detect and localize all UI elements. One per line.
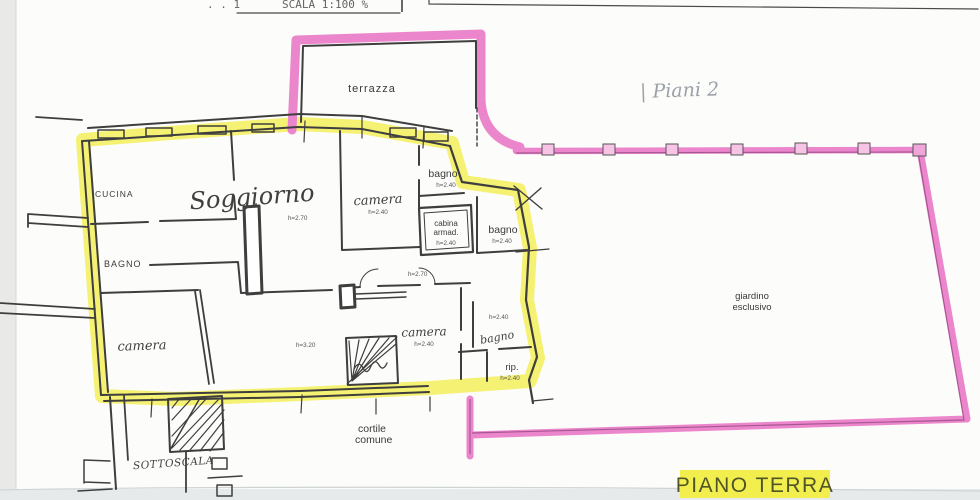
height-bagno-top: h=2.40 xyxy=(436,182,456,189)
height-corridoio: h=2.70 xyxy=(408,271,428,278)
label-camera-sw: camera xyxy=(117,338,167,355)
label-terrazza: terrazza xyxy=(348,83,396,95)
label-giardino-line2: esclusivo xyxy=(732,302,771,313)
label-sottoscala: SOTTOSCALA xyxy=(133,455,215,473)
height-rip: h=2.40 xyxy=(500,375,520,382)
label-camera-s: camera xyxy=(401,324,447,340)
floor-plan-page: . . 1 SCALA 1:100 % xyxy=(0,0,980,500)
label-rip: rip. xyxy=(505,362,518,373)
scan-left-edge xyxy=(0,0,16,500)
stairs-main xyxy=(346,336,398,385)
label-bagno-right: bagno xyxy=(488,224,517,236)
height-soggiorno: h=2.70 xyxy=(288,215,308,222)
height-camera-nw: h=2.40 xyxy=(368,209,388,216)
label-piano-terra: PIANO TERRA xyxy=(676,474,834,497)
note-piani-handwritten: | Piani 2 xyxy=(640,78,720,103)
label-cabina-line2: armad. xyxy=(434,228,459,237)
label-cabina-line1: cabina xyxy=(434,219,458,228)
height-cabina: h=2.40 xyxy=(436,240,456,247)
label-cortile-line2: comune xyxy=(355,434,393,446)
labels: terrazza CUCINA Soggiorno h=2.70 BAGNO c… xyxy=(95,78,834,497)
header-scale-label: SCALA 1:100 % xyxy=(282,0,368,11)
label-soggiorno: Soggiorno xyxy=(189,179,316,216)
apartment-highlight xyxy=(83,124,538,399)
header-strip: . . 1 SCALA 1:100 % xyxy=(207,0,978,13)
label-bagno-top: bagno xyxy=(428,168,457,180)
garden-boundary xyxy=(471,150,967,435)
header-doc-fragment: . . 1 xyxy=(207,0,240,11)
label-bagno-left: BAGNO xyxy=(104,259,142,269)
header-box-edge xyxy=(429,0,978,9)
label-giardino-line1: giardino xyxy=(735,291,769,302)
height-bagno-s: h=2.40 xyxy=(489,314,509,321)
terrace-garden-arc xyxy=(481,100,520,147)
height-camera-sw: h=3.20 xyxy=(296,342,316,349)
label-bagno-s: bagno xyxy=(479,328,515,347)
label-cucina: CUCINA xyxy=(95,189,134,199)
label-camera-nw: camera xyxy=(353,192,403,210)
pink-centerlines xyxy=(470,152,964,454)
height-bagno-right: h=2.40 xyxy=(492,238,512,245)
height-camera-s: h=2.40 xyxy=(414,341,434,348)
floor-plan-canvas: . . 1 SCALA 1:100 % xyxy=(0,0,980,500)
